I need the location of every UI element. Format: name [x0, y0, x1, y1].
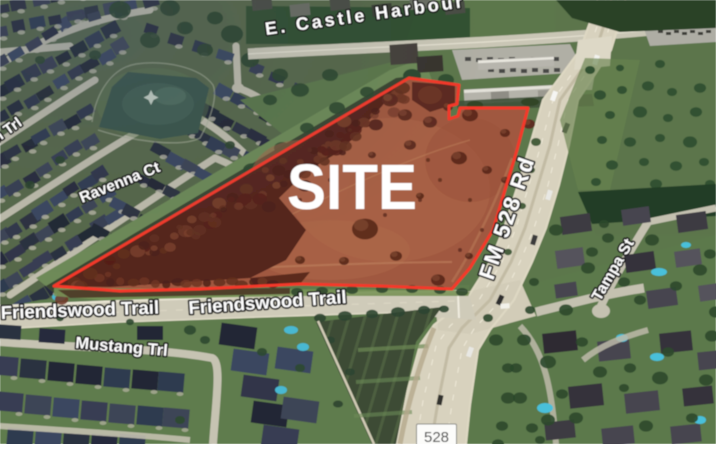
svg-text:SITE: SITE [287, 151, 417, 223]
svg-text:528: 528 [424, 429, 449, 444]
